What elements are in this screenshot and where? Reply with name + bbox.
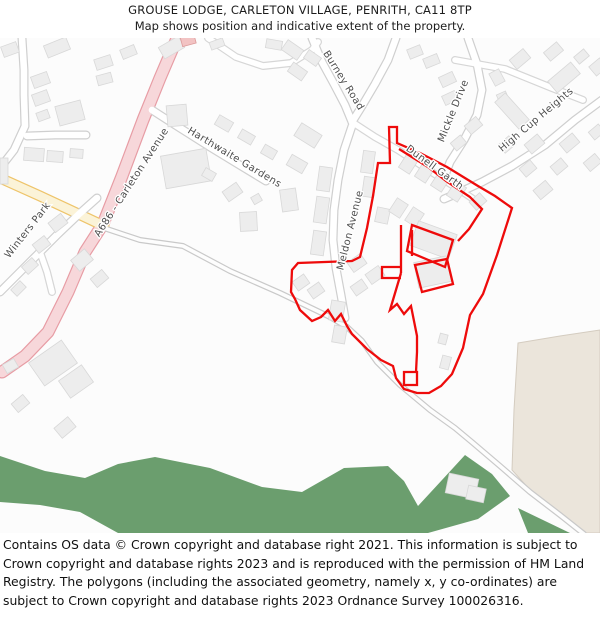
building — [509, 49, 531, 70]
field-area — [512, 330, 600, 533]
building — [0, 158, 8, 184]
building — [31, 90, 50, 107]
building — [389, 198, 409, 218]
building — [55, 100, 85, 126]
building — [222, 182, 243, 202]
building — [294, 123, 322, 148]
building — [96, 72, 113, 86]
map-canvas: Burney RoadMickle DriveHigh Cup HeightsH… — [0, 38, 600, 533]
page-subtitle: Map shows position and indicative extent… — [0, 17, 600, 33]
building — [310, 230, 326, 256]
building — [36, 109, 50, 122]
building — [347, 253, 367, 272]
building — [316, 166, 332, 192]
property-map: Burney RoadMickle DriveHigh Cup HeightsH… — [0, 38, 600, 533]
building — [292, 274, 310, 291]
building — [166, 104, 188, 127]
building — [54, 417, 76, 439]
building — [307, 282, 325, 299]
building — [238, 129, 256, 145]
road-top-left-culdesac-fill — [27, 135, 86, 136]
building — [43, 38, 70, 58]
building — [24, 147, 45, 161]
building — [438, 333, 448, 345]
building — [90, 269, 109, 287]
building — [30, 71, 50, 88]
building — [280, 188, 299, 212]
property-boundary — [390, 273, 417, 372]
building — [439, 355, 451, 370]
copyright-notice: Contains OS data © Crown copyright and d… — [3, 536, 597, 610]
building — [588, 124, 600, 140]
building — [589, 58, 600, 76]
woodland-area — [0, 455, 510, 533]
building — [251, 193, 263, 204]
building — [574, 49, 590, 64]
building — [350, 279, 368, 296]
building — [407, 45, 424, 60]
building — [423, 54, 441, 69]
building — [11, 394, 30, 412]
building — [332, 325, 348, 344]
building — [70, 149, 84, 159]
building — [533, 180, 553, 199]
building — [543, 42, 563, 61]
property-boundary — [382, 267, 401, 278]
building — [438, 71, 456, 87]
building — [583, 153, 600, 171]
building — [1, 42, 20, 58]
page-title: GROUSE LODGE, CARLETON VILLAGE, PENRITH,… — [0, 0, 600, 17]
building — [550, 158, 568, 175]
building — [120, 45, 138, 60]
building — [361, 150, 376, 173]
building — [160, 148, 211, 188]
building — [286, 154, 308, 173]
road-top-left-road-fill — [0, 38, 25, 168]
building — [313, 196, 329, 224]
building — [260, 144, 277, 160]
building — [375, 207, 391, 224]
building — [47, 150, 64, 162]
property-boundary — [404, 372, 417, 385]
building — [240, 212, 258, 232]
pink-building — [180, 38, 196, 47]
map-footer: Contains OS data © Crown copyright and d… — [0, 533, 600, 625]
building — [214, 115, 233, 133]
building — [265, 39, 282, 51]
map-header: GROUSE LODGE, CARLETON VILLAGE, PENRITH,… — [0, 0, 600, 38]
building — [94, 55, 114, 71]
